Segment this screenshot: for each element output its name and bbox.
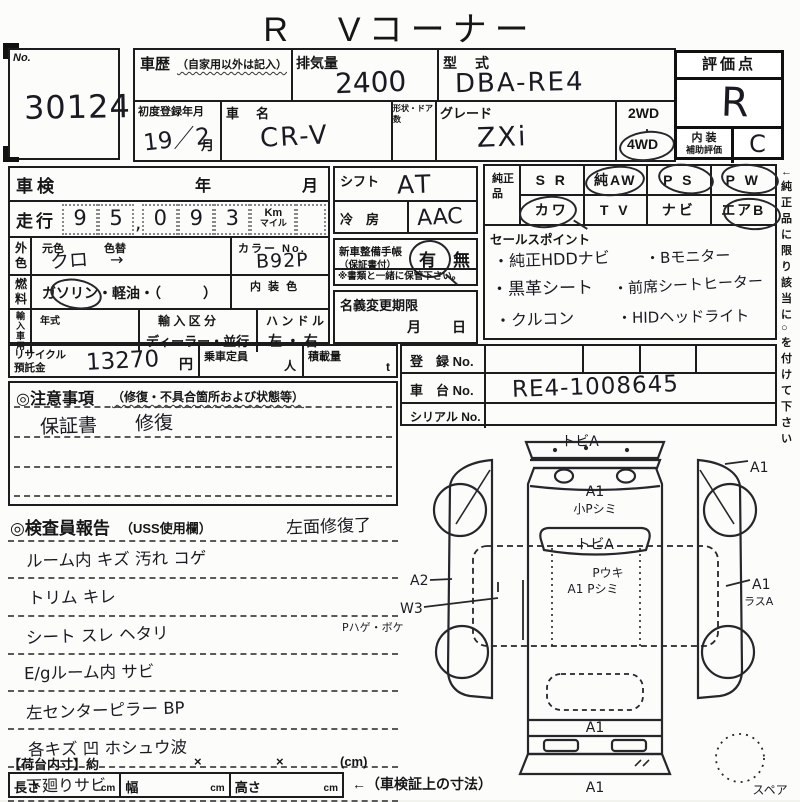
lot-number-value: 30124: [24, 87, 131, 127]
inspector-header: ◎検査員報告: [10, 514, 110, 539]
displacement-box: 排気量 2400: [291, 48, 439, 102]
shaken-row: 車検 年 月: [10, 168, 328, 202]
shaken-year-label: 年: [195, 172, 211, 196]
height-box: 高さ cm: [231, 772, 344, 798]
ac-row: 冷 房 AAC: [335, 202, 476, 234]
sales-point-item: ・純正HDDナビ: [493, 244, 610, 272]
genuine-parts-box: 純正品 S R 純AW P S P W カワ T V ナビ エアB: [483, 164, 777, 226]
genuine-parts-label: 純正品: [485, 166, 521, 224]
recycle-value: 13270: [85, 346, 159, 376]
divider: [230, 238, 232, 274]
year-model-label: 年式: [40, 312, 60, 327]
recycle-unit: 円: [179, 354, 193, 374]
mileage-comma: ,: [135, 210, 141, 234]
sales-point-item: ・前席シートヒーター: [613, 270, 764, 299]
serial-no-row: シリアル No.: [402, 404, 775, 428]
divider: [484, 404, 486, 428]
transfer-day: 日: [452, 317, 466, 337]
divider: [582, 346, 584, 372]
grade-value: ZXi: [476, 121, 528, 154]
cautions-line-text: 保証書 修復: [40, 408, 174, 440]
diagram-note-front: トビA: [561, 434, 599, 450]
diagram-note-windshield: トビA: [576, 537, 614, 553]
shaken-month-label: 月: [302, 172, 318, 196]
reg-no-label: 登 録 No.: [410, 351, 474, 370]
shape-doors-box: 形状・ドア数: [391, 100, 437, 162]
first-registration-box: 初度登録年月 19／2 月: [133, 100, 222, 162]
diagram-note-front-right: A1: [750, 460, 768, 476]
cautions-header-row: ◎注意事項 （修復・不具合箇所および状態等）: [14, 383, 392, 408]
displacement-label: 排気量: [296, 53, 338, 73]
genuine-part-tv: T V: [585, 196, 649, 224]
cautions-line: [14, 468, 392, 497]
orig-color-value: クロ: [49, 245, 89, 275]
mileage-label: 走行: [16, 207, 56, 232]
history-box: 車歴 （自家用以外は記入）: [133, 48, 293, 102]
diagram-note-hood-2: 小Pシミ: [573, 502, 616, 516]
serial-no-label: シリアル No.: [410, 408, 481, 425]
handle-label: ハ ン ド ル: [266, 312, 324, 329]
shape-doors-label: 形状・ドア数: [393, 103, 435, 125]
recycle-row: リサイクル 預託金 13270 円 乗車定員 人 積載量 t: [8, 344, 398, 378]
diagram-note-rear: A1: [586, 720, 604, 736]
shaken-label: 車検: [16, 172, 58, 197]
genuine-part-navi: ナビ: [648, 196, 712, 224]
interior-color-label: 内 装 色: [250, 278, 299, 294]
ac-value: AAC: [416, 204, 463, 231]
score-value-area: R: [677, 80, 781, 126]
diagram-note-hood-1: A1: [586, 484, 604, 500]
fuel-label: 燃料: [10, 276, 32, 308]
chassis-no-row: 車 台 No. RE4-1008645: [402, 374, 775, 404]
first-registration-unit: 月: [201, 135, 214, 154]
mileage-digit: 3: [214, 204, 250, 235]
drive-box: 2WD ・ 4WD: [615, 100, 676, 162]
vehicle-detail-panel: 車検 年 月 走行 9 5 , 0 9 3 Km マイル 外色 元色 色替 クロ…: [8, 166, 330, 344]
transfer-deadline-box: 名義変更期限 月 日: [333, 290, 478, 344]
diagram-note-left-paint: Pハゲ・ボケ: [342, 621, 404, 634]
shift-label: シフト: [340, 171, 379, 190]
page-title: R Vコーナー: [0, 2, 800, 51]
mileage-digit: 9: [178, 204, 214, 235]
mileage-digit: 9: [62, 204, 98, 235]
sales-points-box: セールスポイント ・純正HDDナビ ・黒革シート ・クルコン ・Bモニター ・前…: [483, 226, 777, 340]
sales-point-item: ・黒革シート: [491, 273, 593, 300]
capacity-cell: 乗車定員 人: [200, 346, 304, 376]
divider: [639, 346, 641, 372]
score-box: 評価点 R 内 装 補助評価 C: [674, 50, 784, 160]
car-name-label: 車 名: [226, 103, 271, 122]
diagram-note-left-w3: W3: [400, 601, 423, 617]
chassis-no-label: 車 台 No.: [410, 380, 474, 399]
vehicle-diagram: トビA A1 A1 小Pシミ トビA Pウキ A1 Pシミ A2 W3 Pハゲ・…: [340, 428, 800, 800]
color-change-mark: →: [110, 250, 123, 269]
divider: [407, 202, 409, 234]
grade-label: グレード: [440, 103, 492, 122]
lot-number-box: No. 30124: [8, 48, 120, 160]
diagram-note-roof-2: A1 Pシミ: [568, 582, 619, 596]
service-booklet-box: 新車整備手帳 （保証書付） 有 無 ※書類と一緒に保管下さい。: [333, 238, 478, 286]
reg-no-row: 登 録 No.: [402, 346, 775, 374]
corner-bracket-bottom: [3, 146, 19, 162]
ac-label: 冷 房: [340, 209, 379, 228]
sales-point-item: ・Bモニター: [645, 245, 731, 269]
sales-point-item: ・HIDヘッドライト: [617, 305, 750, 328]
cautions-note: （修復・不具合箇所および状態等）: [112, 388, 304, 405]
transfer-label: 名義変更期限: [340, 295, 418, 314]
drive-2wd: 2WD: [628, 105, 659, 121]
shift-value: AT: [397, 169, 434, 199]
mileage-unit: Km マイル: [250, 204, 296, 235]
color-no-value: B92P: [256, 249, 309, 273]
genuine-part-sr: S R: [521, 166, 585, 196]
dimension-boxes: 長さ cm 幅 cm 高さ cm: [8, 772, 344, 798]
import-class-label: 輸 入 区 分: [158, 312, 216, 329]
displacement-value: 2400: [334, 65, 406, 100]
divider: [484, 346, 486, 372]
shift-row: シフト AT: [335, 168, 476, 202]
first-registration-label: 初度登録年月: [138, 103, 204, 119]
fuel-gasoline-circle: [48, 275, 104, 314]
width-box: 幅 cm: [121, 772, 230, 798]
spare-label: スペア: [752, 783, 787, 797]
auction-sheet: R Vコーナー No. 30124 車歴 （自家用以外は記入） 排気量 2400…: [0, 0, 800, 800]
exterior-color-row: 外色 元色 色替 クロ → カラー No. B92P: [10, 238, 328, 276]
corner-bracket-top: [3, 43, 19, 59]
load-cell: 積載量 t: [304, 346, 396, 376]
divider: [230, 276, 232, 308]
mileage-digit: 5: [98, 204, 134, 235]
transfer-month: 月: [407, 317, 421, 337]
divider: [484, 374, 486, 402]
fuel-row: 燃料 ガソリン・軽油・（ ） 内 装 色: [10, 276, 328, 310]
model-code-value: DBA-RE4: [455, 67, 585, 99]
grade-box: グレード ZXi: [435, 100, 617, 162]
diagram-note-right-rust: ラスA: [744, 595, 774, 608]
spare-tire-circle: [716, 734, 764, 782]
history-label: 車歴: [140, 53, 170, 74]
chassis-no-value: RE4-1008645: [512, 371, 680, 403]
drive-4wd-circle: [618, 128, 677, 164]
interior-score-row: 内 装 補助評価 C: [677, 126, 781, 163]
registration-box: 登 録 No. 車 台 No. RE4-1008645 シリアル No.: [400, 344, 777, 426]
sales-point-item: ・クルコン: [495, 305, 575, 332]
score-value: R: [720, 80, 749, 127]
interior-score-value: C: [734, 129, 781, 163]
interior-score-label: 内 装 補助評価: [677, 129, 734, 163]
score-label: 評価点: [677, 53, 781, 80]
history-note: （自家用以外は記入）: [177, 56, 287, 72]
mileage-extra-cell: [296, 204, 326, 235]
cautions-header: ◎注意事項: [16, 385, 94, 409]
length-box: 長さ cm: [8, 772, 121, 798]
car-name-value: CR-V: [259, 120, 329, 154]
divider: [695, 346, 697, 372]
mileage-digit: 0: [142, 204, 178, 235]
cautions-line: 保証書 修復: [14, 408, 392, 438]
cautions-line: [14, 438, 392, 468]
genuine-parts-side-note: ←純正品に限り該当に○を付けて下さい: [781, 166, 800, 440]
recycle-deposit-cell: リサイクル 預託金 13270 円: [10, 346, 200, 376]
inspector-note: （USS使用欄）: [120, 518, 212, 537]
car-name-box: 車 名 CR-V: [220, 100, 393, 162]
model-code-box: 型 式 DBA-RE4: [437, 48, 676, 102]
exterior-color-label: 外色: [10, 238, 32, 274]
shift-ac-box: シフト AT 冷 房 AAC: [333, 166, 478, 234]
diagram-note-right-a1: A1: [752, 577, 770, 593]
diagram-note-left-a2: A2: [410, 573, 428, 589]
booklet-note: ※書類と一緒に保管下さい。: [335, 268, 476, 284]
diagram-note-rear-bumper: A1: [586, 780, 604, 796]
diagram-note-roof-1: Pウキ: [592, 566, 623, 580]
mileage-row: 走行 9 5 , 0 9 3 Km マイル: [10, 202, 328, 238]
